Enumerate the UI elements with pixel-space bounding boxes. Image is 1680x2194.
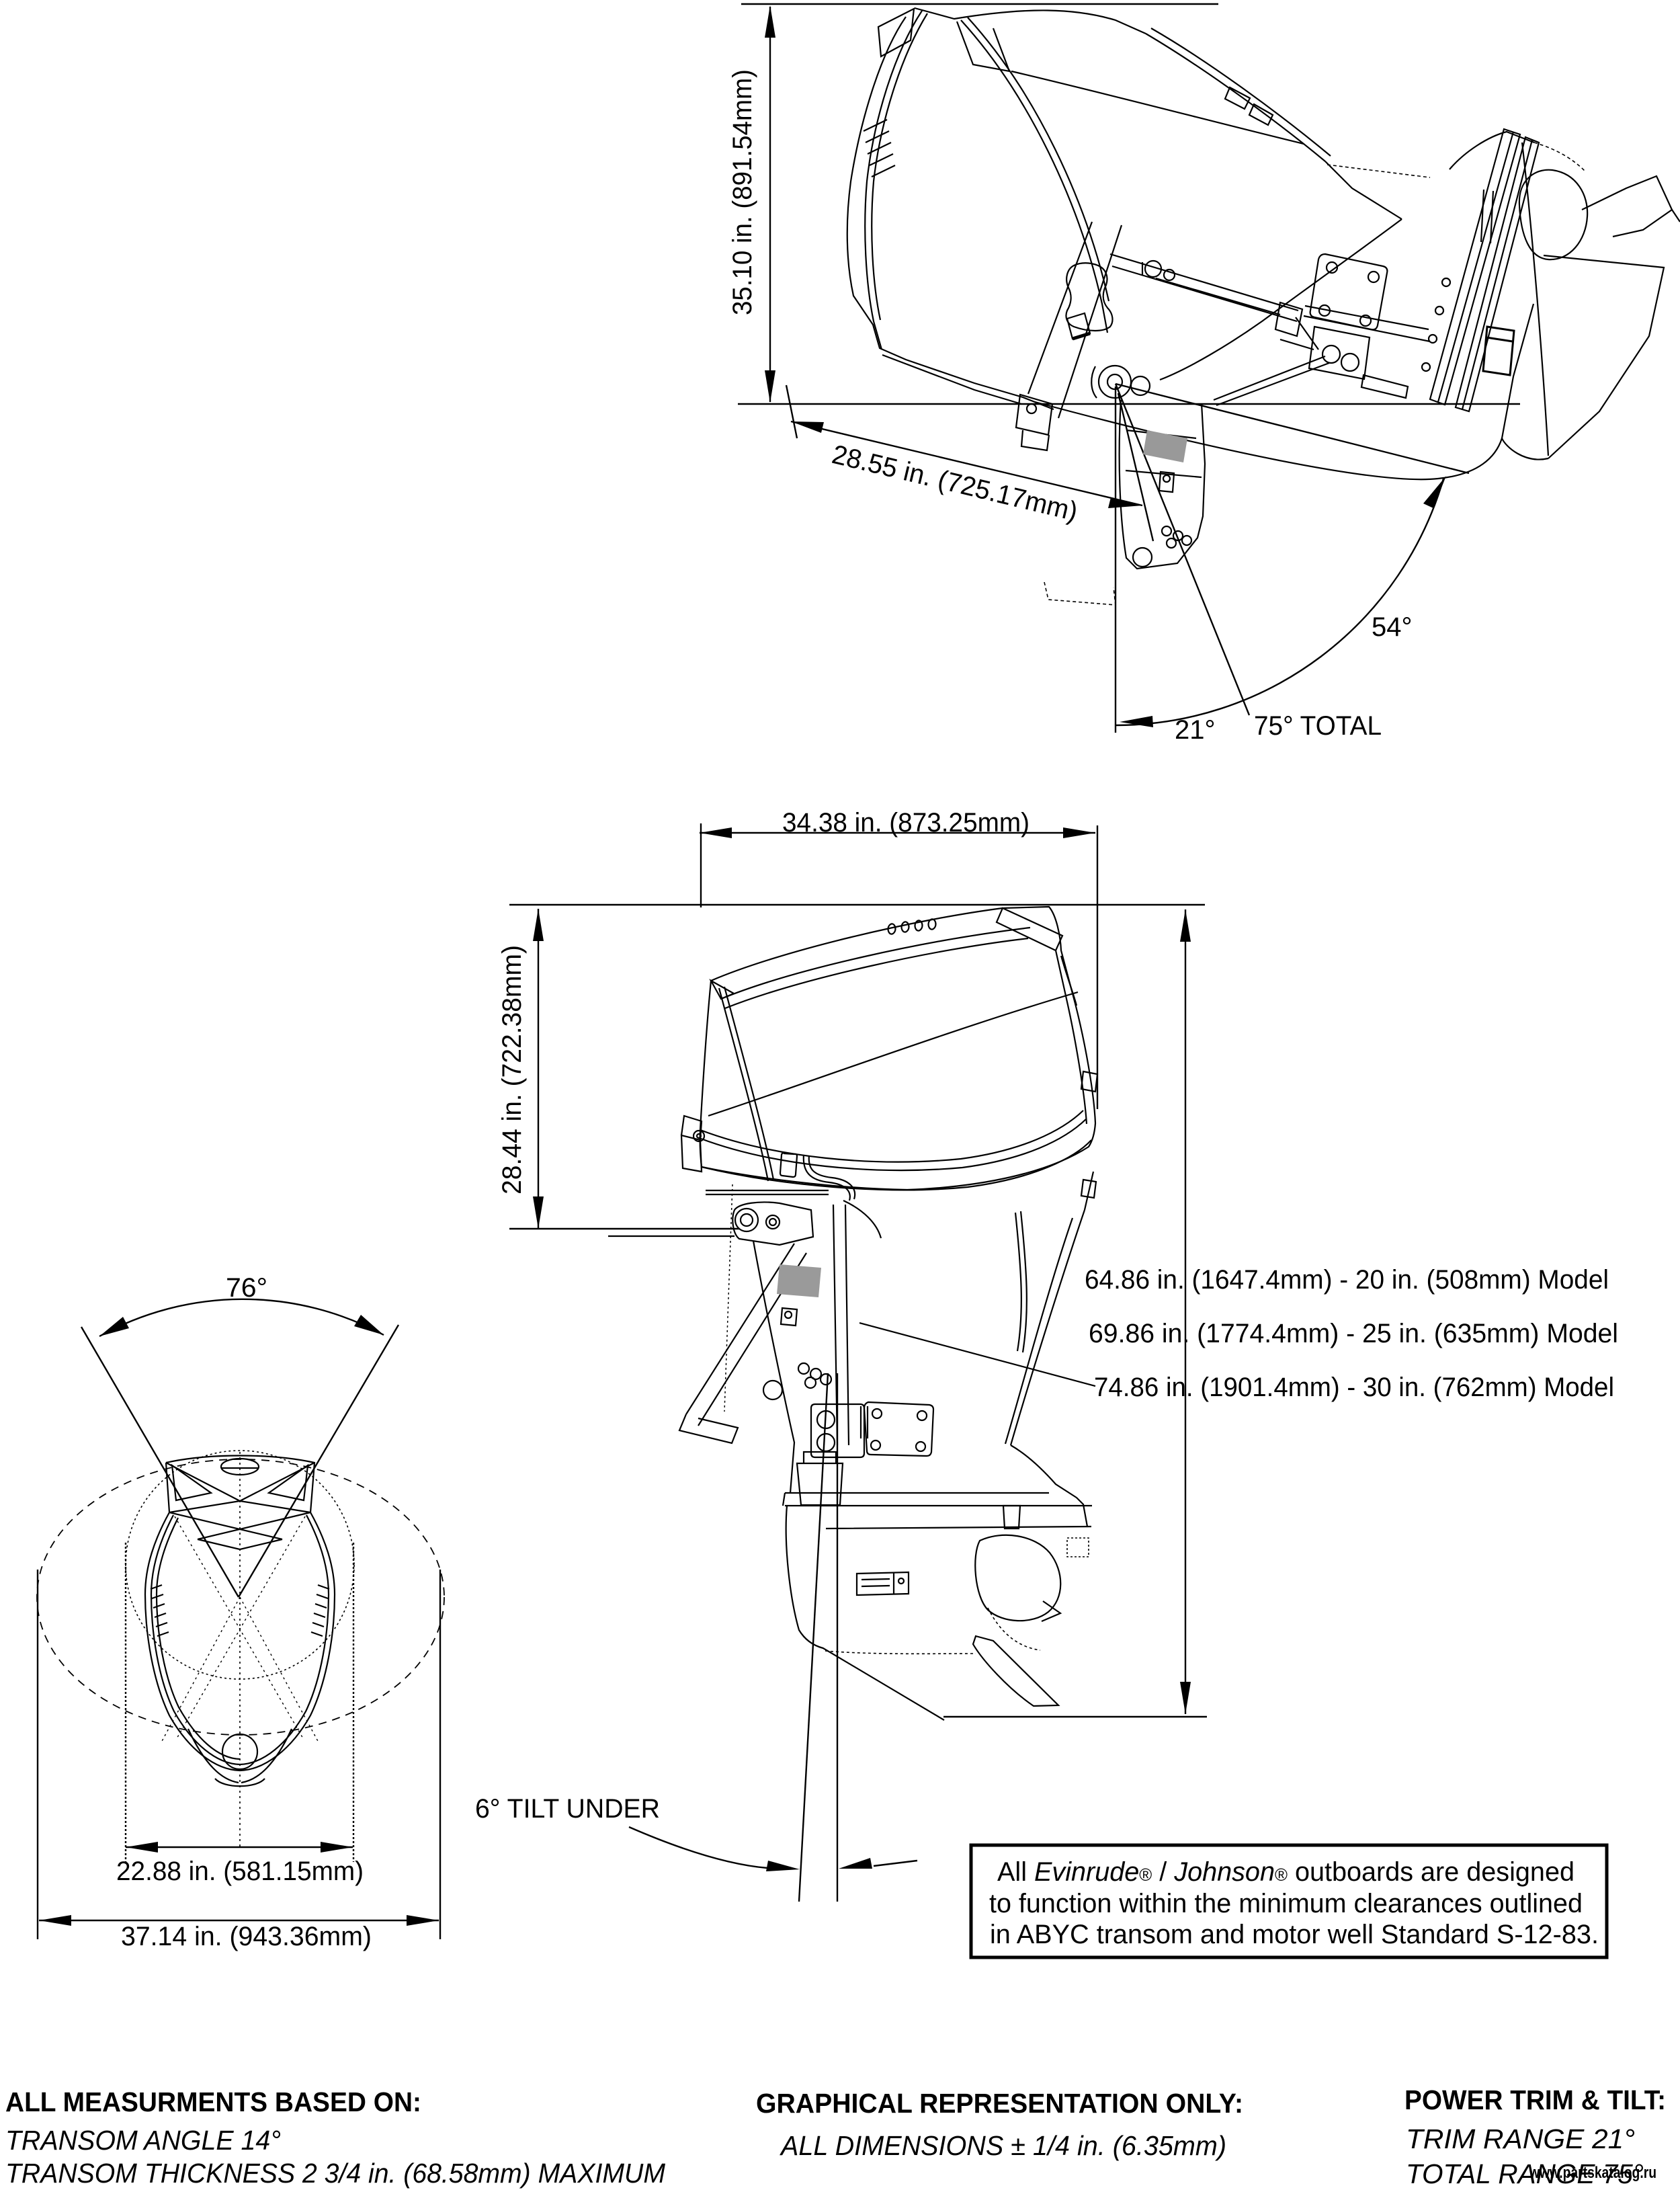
svg-text:ALL DIMENSIONS ± 1/4 in. (6.35: ALL DIMENSIONS ± 1/4 in. (6.35mm) bbox=[779, 2130, 1226, 2161]
svg-text:37.14 in. (943.36mm): 37.14 in. (943.36mm) bbox=[121, 1922, 372, 1951]
svg-text:22.88 in. (581.15mm): 22.88 in. (581.15mm) bbox=[116, 1857, 364, 1886]
svg-text:TRANSOM ANGLE 14°: TRANSOM ANGLE 14° bbox=[5, 2125, 281, 2156]
svg-text:74.86 in. (1901.4mm) - 30 in.: 74.86 in. (1901.4mm) - 30 in. (762mm) Mo… bbox=[1094, 1373, 1614, 1402]
svg-text:21°: 21° bbox=[1175, 715, 1216, 745]
svg-text:64.86 in. (1647.4mm) - 20 in.: 64.86 in. (1647.4mm) - 20 in. (508mm) Mo… bbox=[1085, 1265, 1609, 1295]
svg-text:34.38 in. (873.25mm): 34.38 in. (873.25mm) bbox=[782, 808, 1030, 838]
svg-text:35.10 in. (891.54mm): 35.10 in. (891.54mm) bbox=[728, 69, 757, 315]
svg-text:76°: 76° bbox=[226, 1273, 267, 1303]
svg-text:28.44 in. (722.38mm): 28.44 in. (722.38mm) bbox=[497, 945, 527, 1194]
svg-text:TRANSOM THICKNESS 2 3/4 in. (6: TRANSOM THICKNESS 2 3/4 in. (68.58mm) MA… bbox=[5, 2158, 666, 2189]
svg-text:www.partskatalog.ru: www.partskatalog.ru bbox=[1529, 2164, 1656, 2182]
svg-text:TRIM RANGE 21°: TRIM RANGE 21° bbox=[1406, 2123, 1635, 2154]
svg-text:28.55 in. (725.17mm): 28.55 in. (725.17mm) bbox=[829, 440, 1081, 527]
svg-text:6° TILT UNDER: 6° TILT UNDER bbox=[475, 1794, 660, 1824]
svg-text:69.86 in. (1774.4mm) - 25 in.: 69.86 in. (1774.4mm) - 25 in. (635mm) Mo… bbox=[1089, 1319, 1618, 1348]
svg-text:ALL MEASURMENTS BASED ON:: ALL MEASURMENTS BASED ON: bbox=[5, 2086, 421, 2117]
svg-text:to function within the minimum: to function within the minimum clearance… bbox=[989, 1889, 1583, 1918]
svg-text:All Evinrude® / Johnson® outbo: All Evinrude® / Johnson® outboards are d… bbox=[997, 1857, 1574, 1887]
svg-text:GRAPHICAL REPRESENTATION ONLY:: GRAPHICAL REPRESENTATION ONLY: bbox=[756, 2088, 1243, 2119]
svg-text:POWER TRIM & TILT:: POWER TRIM & TILT: bbox=[1404, 2084, 1666, 2115]
svg-text:75° TOTAL: 75° TOTAL bbox=[1254, 711, 1382, 741]
svg-text:in ABYC transom and motor well: in ABYC transom and motor well Standard … bbox=[990, 1920, 1599, 1949]
svg-text:54°: 54° bbox=[1372, 612, 1413, 642]
